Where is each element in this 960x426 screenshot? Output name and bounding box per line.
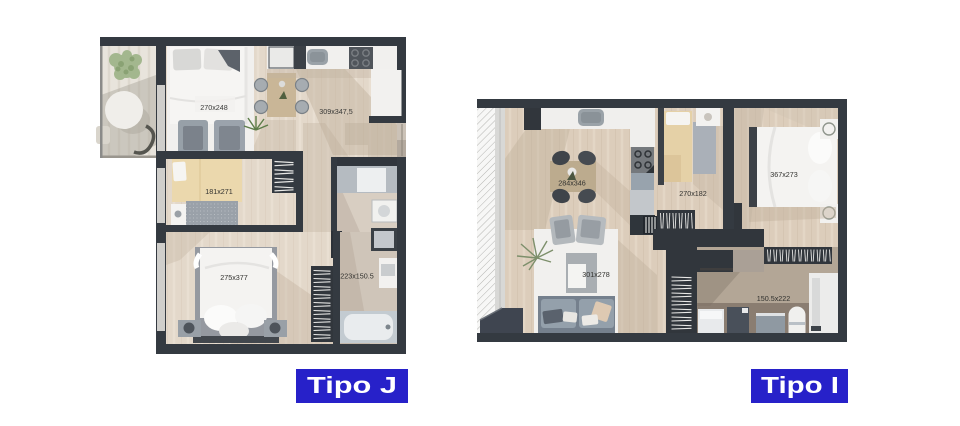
svg-text:Tipo I: Tipo I: [761, 372, 839, 398]
svg-text:301x278: 301x278: [582, 270, 610, 279]
svg-text:309x347,5: 309x347,5: [319, 107, 353, 116]
svg-text:223x150.5: 223x150.5: [340, 272, 374, 281]
svg-text:284x346: 284x346: [558, 179, 586, 188]
svg-text:367x273: 367x273: [770, 170, 798, 179]
svg-text:270x182: 270x182: [679, 189, 707, 198]
svg-text:150.5x222: 150.5x222: [757, 294, 791, 303]
svg-text:275x377: 275x377: [220, 273, 248, 282]
svg-text:Tipo J: Tipo J: [307, 372, 397, 398]
svg-text:181x271: 181x271: [205, 187, 233, 196]
svg-text:270x248: 270x248: [200, 103, 228, 112]
